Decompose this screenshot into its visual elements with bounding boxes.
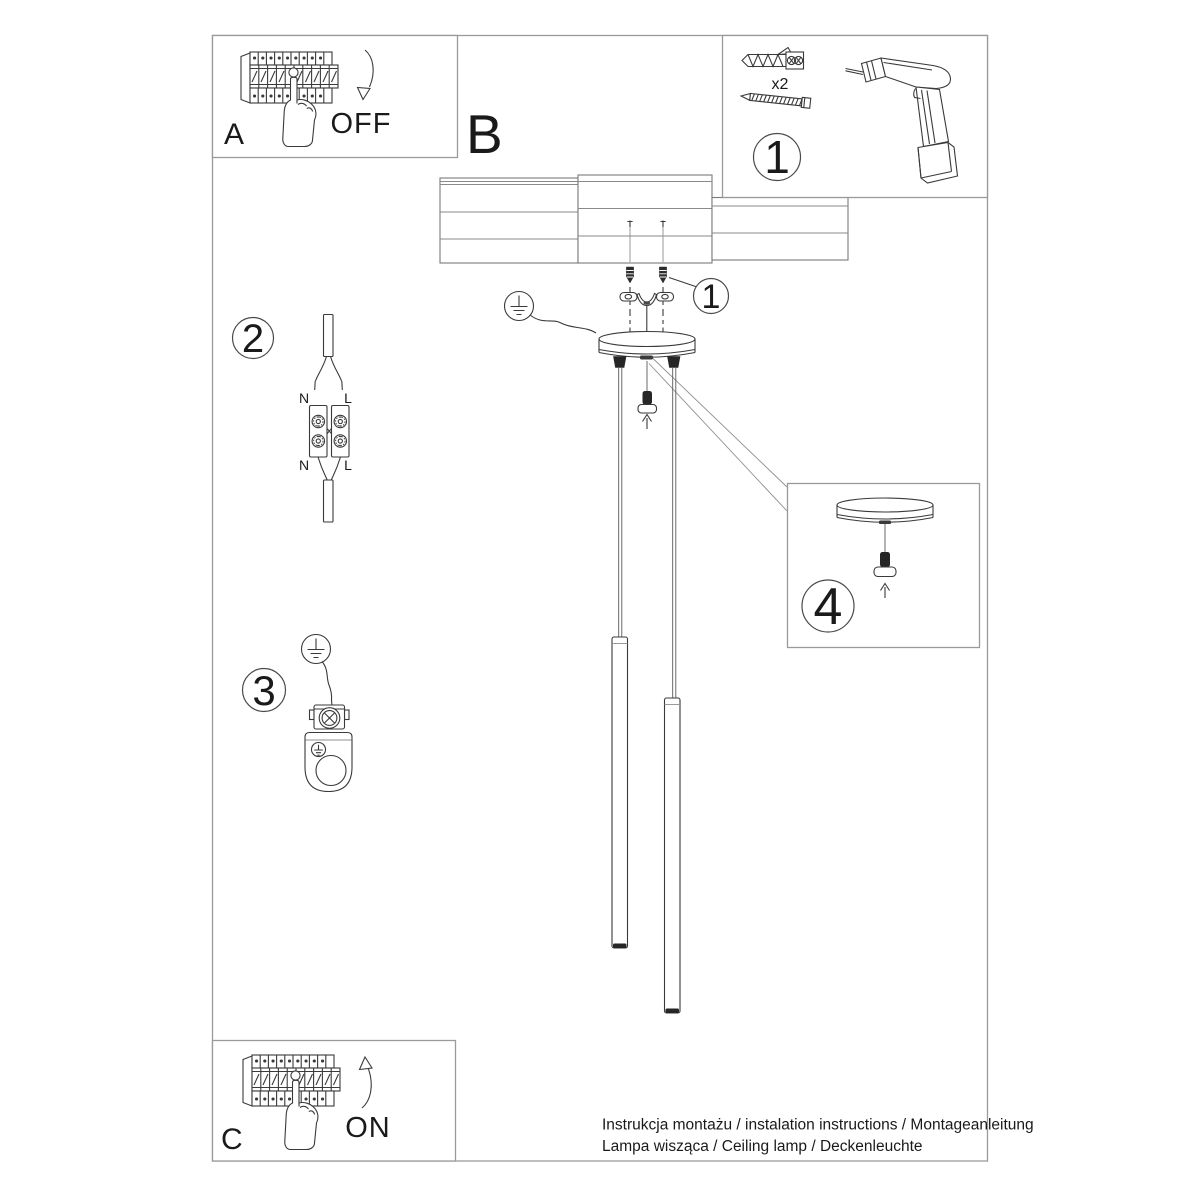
footer-line1: Instrukcja montażu / instalation instruc… bbox=[602, 1117, 1034, 1134]
step2-number: 2 bbox=[242, 317, 264, 361]
tools-number: 1 bbox=[764, 131, 790, 183]
cable-top bbox=[324, 315, 334, 357]
panel-c: C ON bbox=[213, 1041, 456, 1162]
cord-grip-right bbox=[668, 357, 681, 368]
label-off: OFF bbox=[331, 108, 392, 140]
label-on: ON bbox=[345, 1112, 391, 1144]
wire-label-l-bottom: L bbox=[344, 457, 352, 473]
breaker-panel-a bbox=[241, 52, 338, 103]
step4-number: 4 bbox=[814, 578, 843, 636]
label-c: C bbox=[221, 1123, 243, 1156]
pendant-tube-left bbox=[612, 637, 628, 948]
pendant-tube-right bbox=[665, 698, 681, 1013]
cord-grip-left bbox=[614, 357, 627, 368]
wire-label-n-bottom: N bbox=[299, 457, 309, 473]
label-a: A bbox=[224, 118, 244, 151]
wire-label-l-top: L bbox=[344, 390, 352, 406]
tube-tip-left bbox=[613, 944, 627, 949]
cable-bottom bbox=[324, 480, 334, 522]
panel-detail-4: 4 bbox=[788, 484, 980, 648]
footer-line2: Lampa wisząca / Ceiling lamp / Deckenleu… bbox=[602, 1138, 923, 1155]
panel-tools: x2 1 bbox=[723, 36, 988, 198]
wire-label-n-top: N bbox=[299, 390, 309, 406]
ground-symbol-step3 bbox=[302, 635, 331, 664]
anchor-qty: x2 bbox=[772, 76, 789, 93]
canopy-slot bbox=[640, 356, 653, 360]
canopy-mount-bracket bbox=[305, 733, 352, 792]
label-b: B bbox=[466, 103, 503, 165]
tube-tip-right bbox=[666, 1009, 680, 1014]
breaker-panel-c bbox=[243, 1055, 340, 1106]
bracket-callout-number: 1 bbox=[702, 278, 721, 316]
instruction-sheet: 1 2 bbox=[0, 0, 1200, 1200]
earth-terminal bbox=[310, 705, 350, 729]
step3-number: 3 bbox=[252, 667, 275, 714]
panel-a: A OFF bbox=[213, 36, 458, 158]
